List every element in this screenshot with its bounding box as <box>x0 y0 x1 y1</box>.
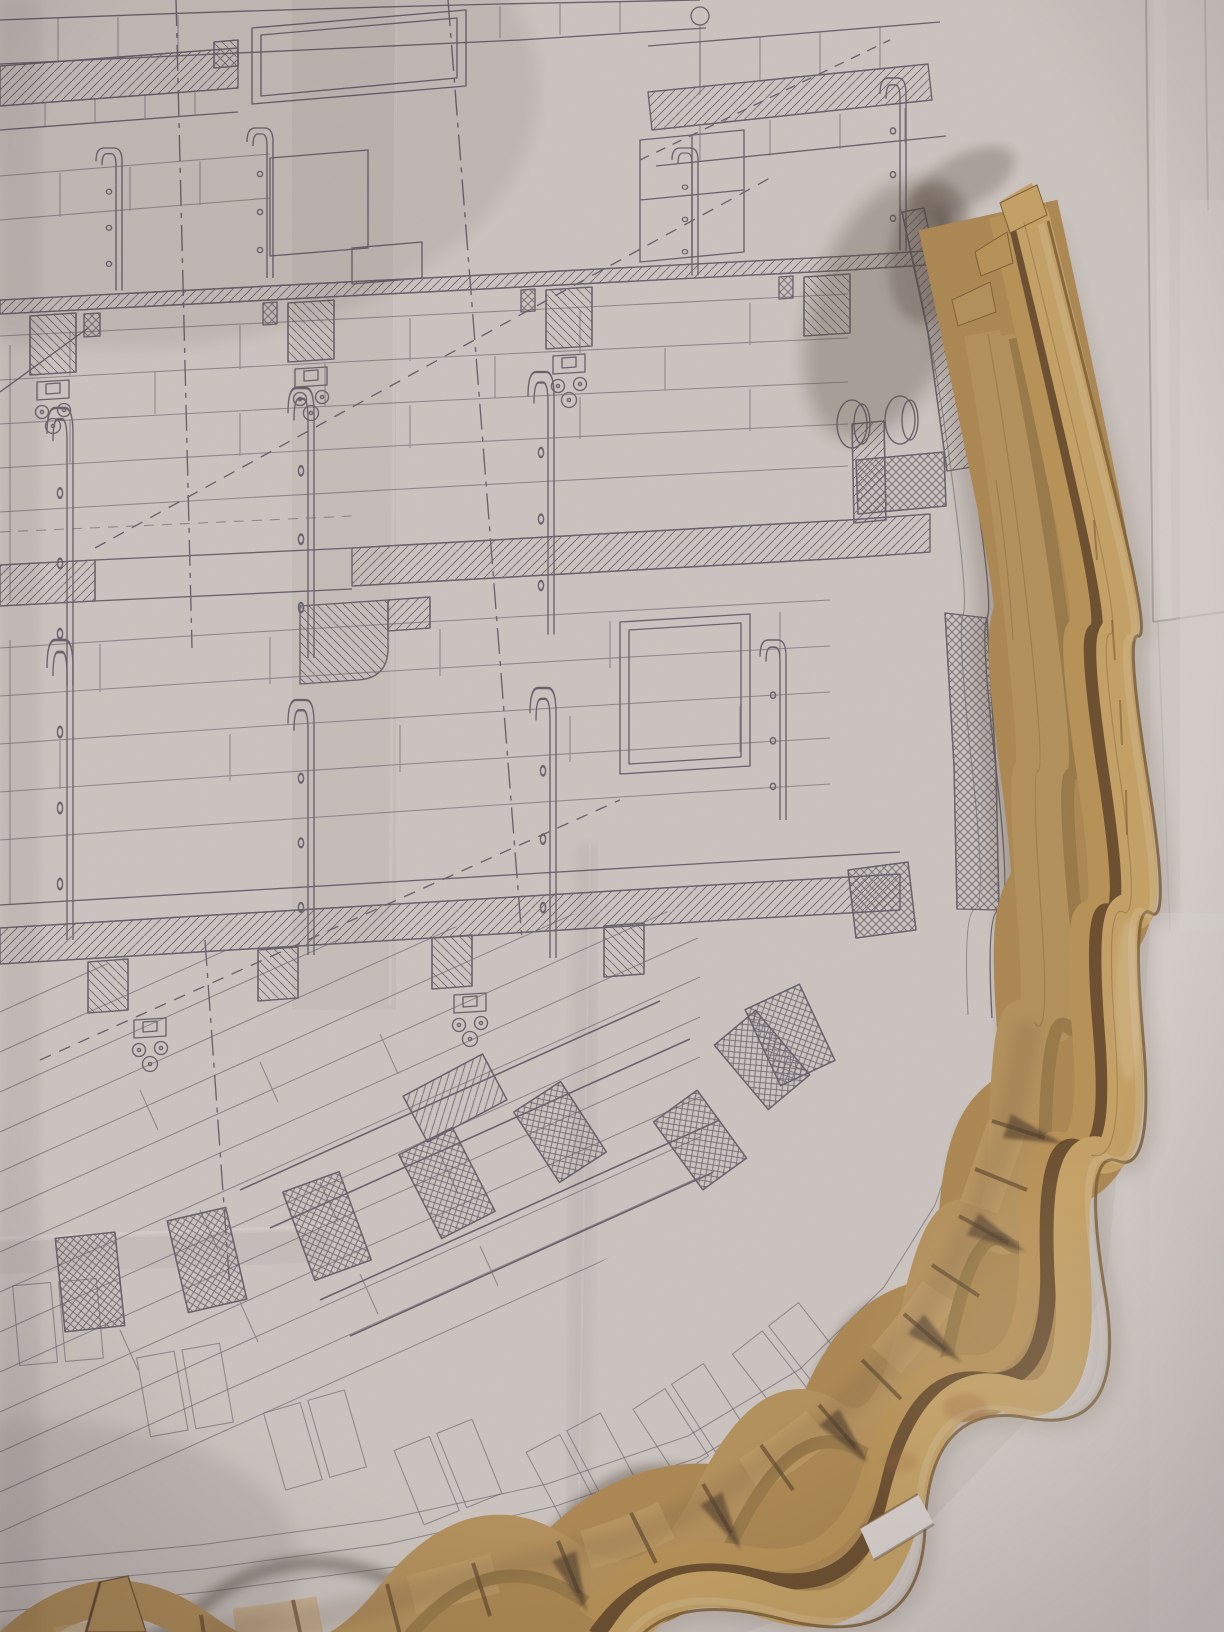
photo-canvas: Wooden ship model wale strips and frame … <box>0 0 1224 1632</box>
lighting <box>0 0 1224 1632</box>
photo-of-ship-plan-and-model: Wooden ship model wale strips and frame … <box>0 0 1224 1632</box>
